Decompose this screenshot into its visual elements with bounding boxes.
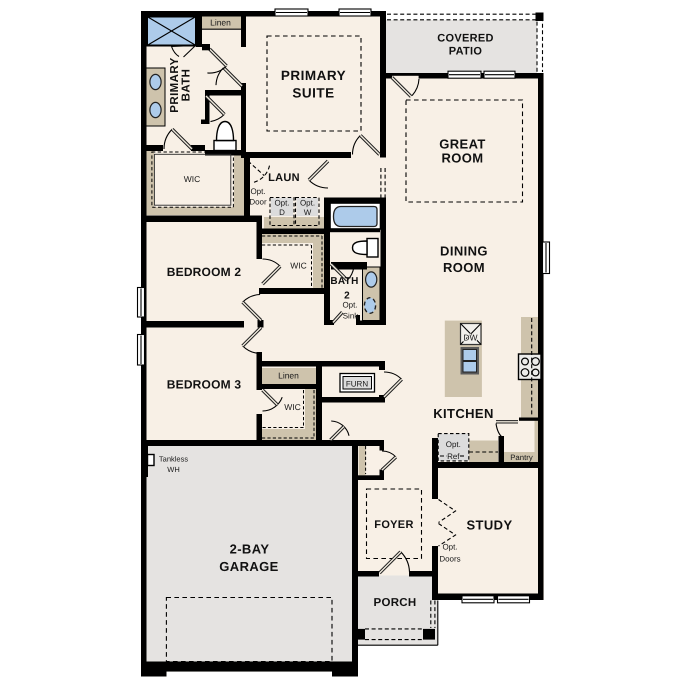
svg-text:FOYER: FOYER xyxy=(374,519,413,531)
svg-text:FURN: FURN xyxy=(346,380,368,389)
svg-text:PATIO: PATIO xyxy=(449,46,483,58)
svg-text:WIC: WIC xyxy=(290,261,307,271)
svg-text:BEDROOM 2: BEDROOM 2 xyxy=(167,265,242,279)
svg-text:W: W xyxy=(304,208,312,217)
svg-text:BATH: BATH xyxy=(181,69,193,102)
svg-text:STUDY: STUDY xyxy=(466,518,512,533)
svg-text:Opt.: Opt. xyxy=(274,199,289,208)
svg-text:ROOM: ROOM xyxy=(441,151,483,166)
svg-text:Opt.: Opt. xyxy=(300,199,315,208)
svg-text:WH: WH xyxy=(167,465,180,474)
svg-text:BATH: BATH xyxy=(330,276,358,287)
svg-text:DW: DW xyxy=(463,333,477,343)
svg-text:SUITE: SUITE xyxy=(292,86,334,101)
svg-text:BEDROOM 3: BEDROOM 3 xyxy=(167,378,242,392)
svg-text:Opt.: Opt. xyxy=(250,187,265,196)
svg-text:D: D xyxy=(279,208,285,217)
svg-text:Doors: Doors xyxy=(439,555,460,564)
svg-text:Pantry: Pantry xyxy=(510,453,533,462)
svg-text:Linen: Linen xyxy=(278,371,299,381)
svg-text:Opt.: Opt. xyxy=(446,440,461,449)
svg-text:WIC: WIC xyxy=(284,402,301,412)
svg-text:PRIMARY: PRIMARY xyxy=(281,68,346,83)
svg-text:GREAT: GREAT xyxy=(439,137,486,152)
svg-text:ROOM: ROOM xyxy=(443,260,485,275)
svg-text:PORCH: PORCH xyxy=(373,597,416,609)
svg-text:Opt.: Opt. xyxy=(442,543,457,552)
svg-text:Linen: Linen xyxy=(210,18,231,28)
svg-text:Opt.: Opt. xyxy=(342,301,357,310)
svg-text:Door: Door xyxy=(249,198,267,207)
svg-text:2-BAY: 2-BAY xyxy=(230,542,270,557)
svg-text:WIC: WIC xyxy=(184,174,201,184)
svg-text:PRIMARY: PRIMARY xyxy=(169,57,181,112)
svg-text:LAUN: LAUN xyxy=(268,172,300,184)
svg-text:Tankless: Tankless xyxy=(159,455,188,464)
svg-text:KITCHEN: KITCHEN xyxy=(433,406,494,421)
svg-text:COVERED: COVERED xyxy=(437,33,494,45)
svg-text:GARAGE: GARAGE xyxy=(219,559,278,574)
svg-text:Ref: Ref xyxy=(447,452,460,461)
svg-text:DINING: DINING xyxy=(440,244,488,259)
svg-text:Sink: Sink xyxy=(343,312,360,321)
